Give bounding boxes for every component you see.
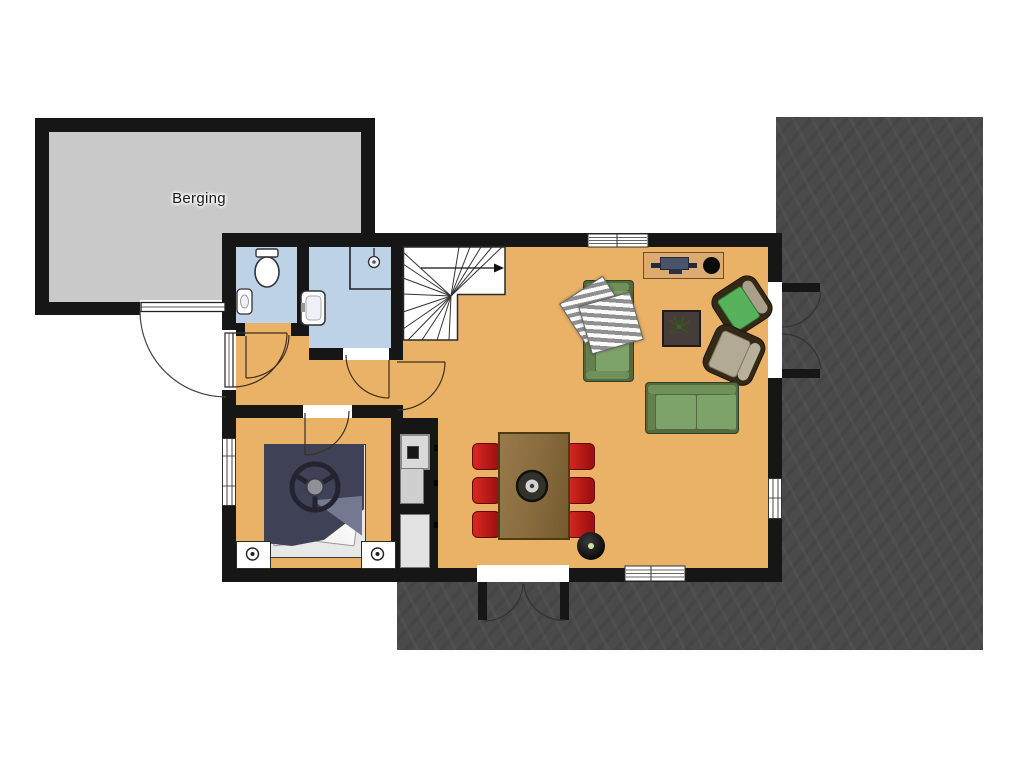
coffee-table <box>662 310 701 347</box>
front-door-opening <box>222 330 236 390</box>
french-door-south-leaf-right <box>560 582 569 620</box>
room-label-berging: Berging <box>119 189 279 209</box>
floor-lamp <box>577 532 605 560</box>
tv-stand <box>669 269 682 274</box>
french-door-south-leaf-left <box>478 582 487 620</box>
sofa-horizontal <box>645 382 739 434</box>
sideboard <box>643 252 724 279</box>
dining-chair <box>566 477 595 504</box>
oven-door <box>407 446 419 459</box>
french-door-south-opening <box>477 565 569 582</box>
terrace-east <box>776 117 983 650</box>
sofa-armrest <box>648 394 655 430</box>
counter-knob <box>434 445 438 451</box>
lamp-light <box>588 543 594 549</box>
berging-door-opening <box>140 300 226 316</box>
dining-table <box>498 432 570 540</box>
french-door-east-opening <box>768 282 782 378</box>
dining-chair <box>472 443 501 470</box>
sofa-cushion <box>656 395 696 429</box>
nightstand-left <box>236 541 271 569</box>
french-door-east-leaf-bottom <box>782 369 820 378</box>
counter-knob <box>434 480 438 486</box>
kitchen-worktop <box>400 514 430 568</box>
speaker <box>703 257 720 274</box>
bathroom-floor <box>309 247 391 348</box>
sofa-back <box>648 385 736 394</box>
french-door-east-leaf-top <box>782 283 820 292</box>
floorplan: Berging <box>0 0 1024 768</box>
toilet-room-floor <box>236 247 297 323</box>
counter-knob <box>434 522 438 528</box>
dining-chair <box>566 443 595 470</box>
sofa-cushion <box>697 395 736 429</box>
sofa-armrest <box>586 371 629 379</box>
dining-chair <box>472 477 501 504</box>
toilet-door-opening <box>245 323 291 336</box>
bathroom-door-opening <box>343 348 389 360</box>
oven <box>400 434 430 470</box>
kitchen-cabinet <box>400 468 424 504</box>
nightstand-right <box>361 541 396 569</box>
terrace-south <box>397 580 776 650</box>
berging-exterior-door <box>140 303 226 398</box>
wall-bathroom-east <box>391 247 403 360</box>
bedroom-door-opening <box>303 405 352 418</box>
dining-chair <box>472 511 501 538</box>
